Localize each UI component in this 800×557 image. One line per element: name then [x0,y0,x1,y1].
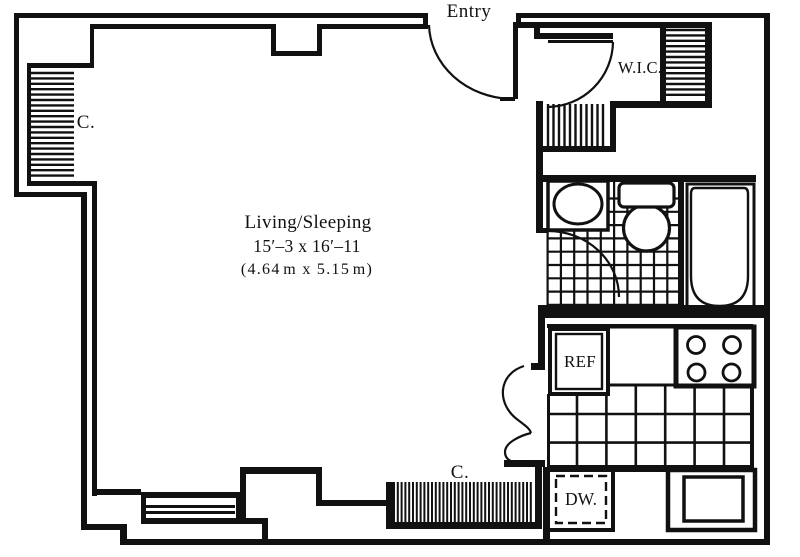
svg-text:15′–3 x 16′–11: 15′–3 x 16′–11 [253,236,360,256]
svg-text:(4.64 m x 5.15 m): (4.64 m x 5.15 m) [241,261,373,278]
svg-text:DW.: DW. [565,489,597,509]
svg-text:REF: REF [564,352,596,371]
svg-text:Entry: Entry [447,1,492,22]
svg-text:Living/Sleeping: Living/Sleeping [245,212,372,233]
svg-text:C.: C. [451,462,469,483]
svg-text:W.I.C.: W.I.C. [618,58,662,77]
svg-text:C.: C. [77,112,95,133]
